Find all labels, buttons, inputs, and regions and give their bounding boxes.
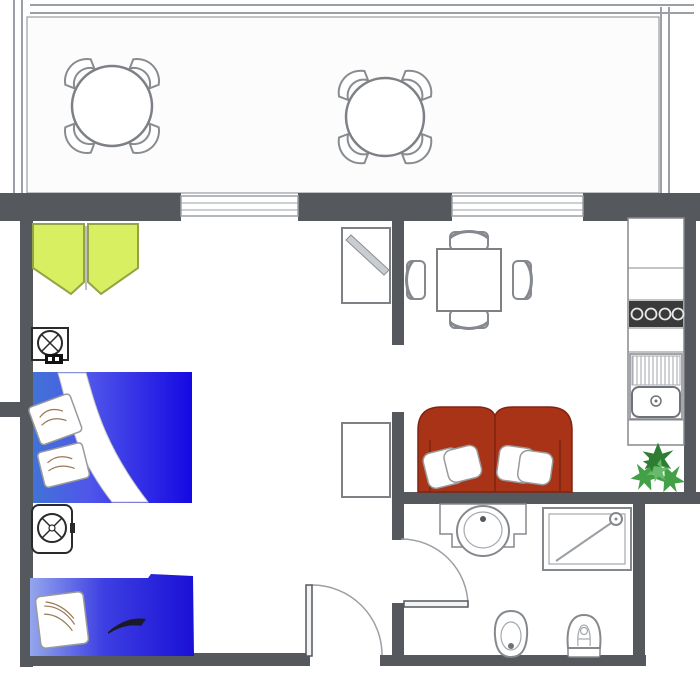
plant-icon	[626, 443, 690, 499]
kitchen	[626, 218, 690, 498]
single-bed	[30, 574, 194, 656]
dining-table-icon	[437, 249, 501, 311]
wardrobe-door-left	[33, 224, 84, 294]
shower-icon	[543, 508, 631, 570]
drainboard	[632, 356, 680, 385]
wardrobe-door-right	[88, 224, 138, 294]
patio-table-icon	[346, 78, 424, 156]
bidet-icon	[568, 615, 601, 657]
wall-middle-lowest	[392, 603, 404, 666]
wall-top-middle	[298, 193, 452, 221]
window-right	[452, 196, 583, 216]
patio-set-2	[332, 64, 437, 169]
double-bed	[28, 372, 192, 503]
mirror-cabinet-icon	[342, 228, 390, 303]
wall-middle-upper	[392, 214, 404, 345]
floor-plan	[0, 0, 700, 700]
dining-chair-icon	[513, 261, 531, 299]
toilet-icon	[495, 611, 527, 657]
fixture-box	[45, 354, 63, 364]
patio-table-icon	[72, 66, 152, 146]
living-room	[342, 228, 572, 497]
ceiling-fixture-icon	[32, 328, 68, 364]
cooktop-icon	[629, 301, 684, 327]
window-left	[181, 196, 298, 216]
entry-door-swing-arc	[312, 585, 382, 655]
floor-plan-svg	[0, 0, 700, 700]
wall-left-stub	[0, 402, 20, 417]
pillow	[35, 591, 89, 648]
wall-right	[684, 221, 696, 492]
entry-door-leaf	[306, 585, 312, 656]
dining-chair-icon	[450, 310, 488, 328]
wall-middle-lower	[392, 412, 404, 540]
dining-chair-icon	[450, 232, 488, 250]
bathroom-door-leaf	[404, 601, 468, 607]
terrace-right-border	[661, 7, 669, 193]
kitchen-sink-icon	[630, 354, 682, 419]
washbasin-icon	[440, 504, 526, 556]
sofa	[418, 407, 572, 492]
terrace-left-border	[14, 0, 22, 193]
bathroom	[440, 504, 631, 657]
entry-door	[306, 585, 382, 656]
terrace	[14, 0, 694, 193]
dining-set	[407, 232, 532, 329]
bedroom	[28, 224, 194, 656]
wardrobe-icon	[33, 224, 138, 294]
patio-set-1	[59, 53, 166, 160]
bathroom-door-swing-arc	[401, 539, 468, 606]
bathroom-door	[401, 539, 468, 607]
nightstand-fixture-icon	[32, 505, 75, 553]
wall-living-bath	[392, 492, 700, 504]
terrace-top-border	[30, 5, 694, 13]
dining-chair-icon	[407, 261, 425, 299]
wall-top-right	[583, 193, 700, 221]
lower-cabinet-icon	[342, 423, 390, 497]
wall-bath-right	[633, 504, 645, 666]
